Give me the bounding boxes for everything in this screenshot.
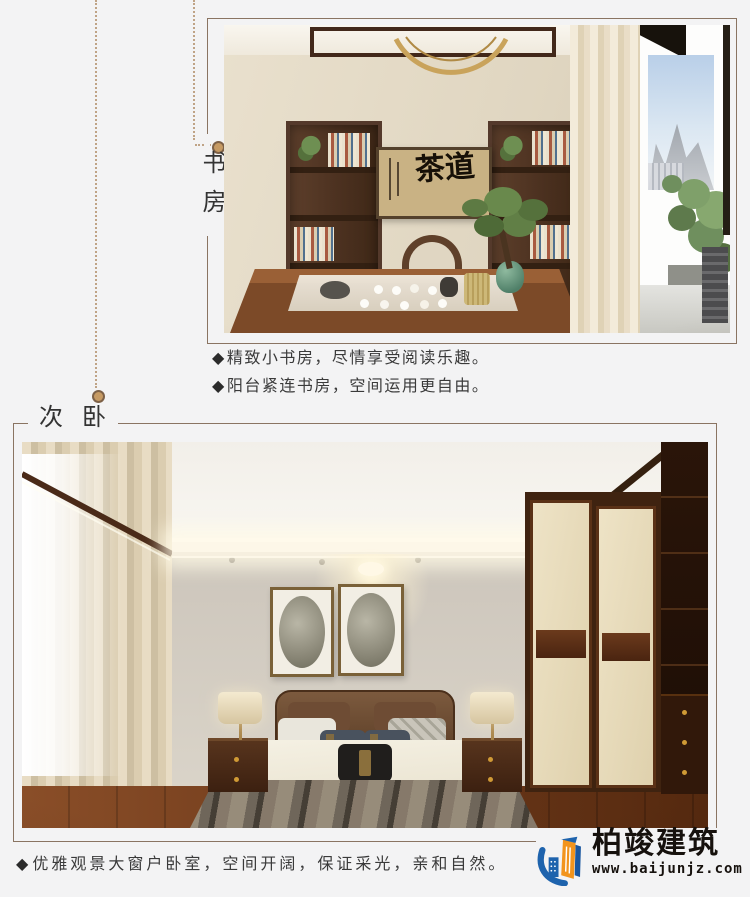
bullet-item: ◆优雅观景大窗户卧室，空间开阔，保证采光，亲和自然。 bbox=[16, 851, 507, 879]
bullet-text: 精致小书房，尽情享受阅读乐趣。 bbox=[227, 350, 490, 367]
study-room-photo: 茶道 bbox=[224, 25, 730, 333]
diamond-bullet-icon: ◆ bbox=[212, 350, 226, 367]
diamond-bullet-icon: ◆ bbox=[212, 378, 226, 395]
study-bullets: ◆精致小书房，尽情享受阅读乐趣。 ◆阳台紧连书房，空间运用更自由。 bbox=[212, 345, 489, 401]
dotted-guide-line-left bbox=[95, 0, 97, 388]
dotted-guide-line-study bbox=[193, 0, 195, 140]
bullet-text: 优雅观景大窗户卧室，空间开阔，保证采光，亲和自然。 bbox=[32, 856, 507, 873]
baijun-building-logo-icon bbox=[536, 834, 590, 886]
bedroom-photo bbox=[22, 442, 708, 828]
brand-name: 柏竣建筑 bbox=[592, 828, 743, 860]
bedroom-label: 次卧 bbox=[39, 397, 125, 432]
bullet-item: ◆阳台紧连书房，空间运用更自由。 bbox=[212, 373, 489, 401]
bedroom-bullets: ◆优雅观景大窗户卧室，空间开阔，保证采光，亲和自然。 bbox=[16, 851, 507, 879]
bullet-item: ◆精致小书房，尽情享受阅读乐趣。 bbox=[212, 345, 489, 373]
logo-text-block: 柏竣建筑 www.baijunjz.com bbox=[592, 828, 743, 877]
photo-vignette bbox=[224, 25, 730, 333]
photo-vignette bbox=[22, 442, 708, 828]
bullet-text: 阳台紧连书房，空间运用更自由。 bbox=[227, 378, 490, 395]
brand-logo: 柏竣建筑 www.baijunjz.com bbox=[536, 828, 750, 897]
page: 书房 茶道 bbox=[0, 0, 750, 897]
diamond-bullet-icon: ◆ bbox=[16, 856, 31, 873]
brand-website: www.baijunjz.com bbox=[592, 861, 743, 877]
